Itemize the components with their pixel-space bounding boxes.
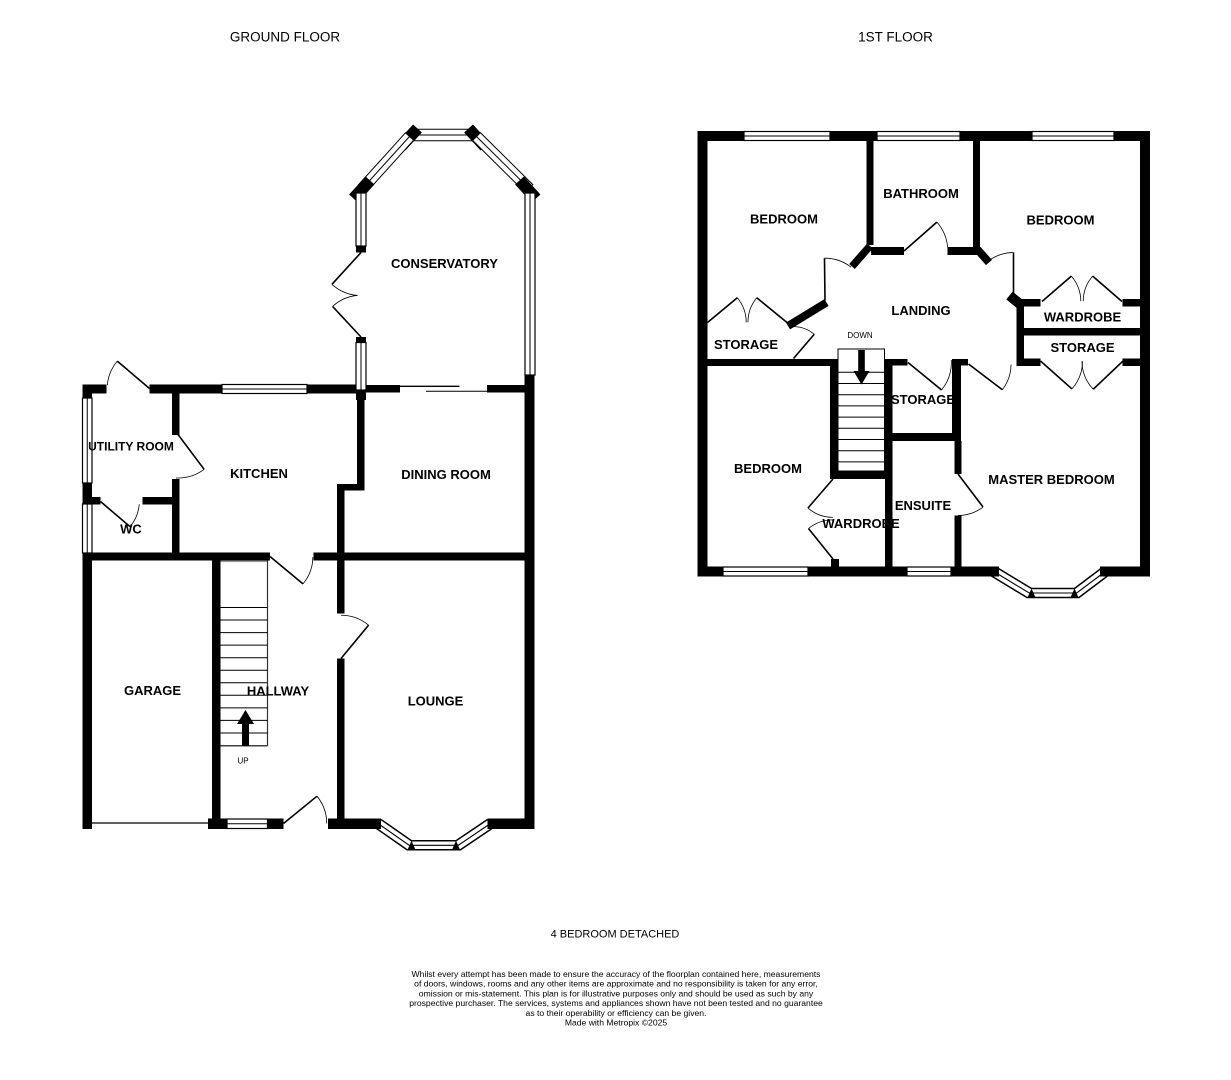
svg-text:of doors, windows, rooms and a: of doors, windows, rooms and any other i…	[414, 979, 818, 989]
svg-text:as to their operability or eff: as to their operability or efficiency ca…	[526, 1008, 707, 1018]
svg-text:STORAGE: STORAGE	[891, 392, 955, 407]
svg-text:DINING ROOM: DINING ROOM	[401, 467, 491, 482]
svg-text:omission or mis-statement. Thi: omission or mis-statement. This plan is …	[419, 988, 814, 998]
svg-text:4 BEDROOM DETACHED: 4 BEDROOM DETACHED	[551, 929, 680, 941]
svg-text:Whilst every attempt has been: Whilst every attempt has been made to en…	[412, 969, 821, 979]
svg-text:BEDROOM: BEDROOM	[1027, 212, 1095, 227]
svg-text:WARDROBE: WARDROBE	[1044, 309, 1122, 324]
svg-text:LOUNGE: LOUNGE	[408, 694, 464, 709]
svg-text:DOWN: DOWN	[847, 331, 873, 340]
svg-text:ENSUITE: ENSUITE	[895, 498, 952, 513]
svg-text:STORAGE: STORAGE	[1050, 340, 1114, 355]
svg-text:KITCHEN: KITCHEN	[230, 466, 288, 481]
svg-text:BATHROOM: BATHROOM	[883, 186, 959, 201]
svg-text:STORAGE: STORAGE	[714, 337, 778, 352]
svg-text:UP: UP	[237, 757, 248, 766]
svg-text:Made with Metropix ©2025: Made with Metropix ©2025	[565, 1018, 668, 1028]
svg-text:BEDROOM: BEDROOM	[750, 212, 818, 227]
svg-text:MASTER BEDROOM: MASTER BEDROOM	[988, 472, 1114, 487]
svg-text:BEDROOM: BEDROOM	[734, 461, 802, 476]
svg-text:prospective purchaser. The ser: prospective purchaser. The services, sys…	[409, 998, 823, 1008]
svg-text:CONSERVATORY: CONSERVATORY	[391, 256, 498, 271]
svg-text:UTILITY ROOM: UTILITY ROOM	[88, 440, 174, 454]
svg-text:GARAGE: GARAGE	[124, 683, 181, 698]
svg-text:WARDROBE: WARDROBE	[822, 516, 900, 531]
svg-text:GROUND FLOOR: GROUND FLOOR	[230, 30, 341, 45]
svg-text:1ST FLOOR: 1ST FLOOR	[858, 30, 933, 45]
svg-text:WC: WC	[120, 522, 142, 537]
svg-text:LANDING: LANDING	[891, 303, 950, 318]
svg-text:HALLWAY: HALLWAY	[247, 684, 310, 699]
